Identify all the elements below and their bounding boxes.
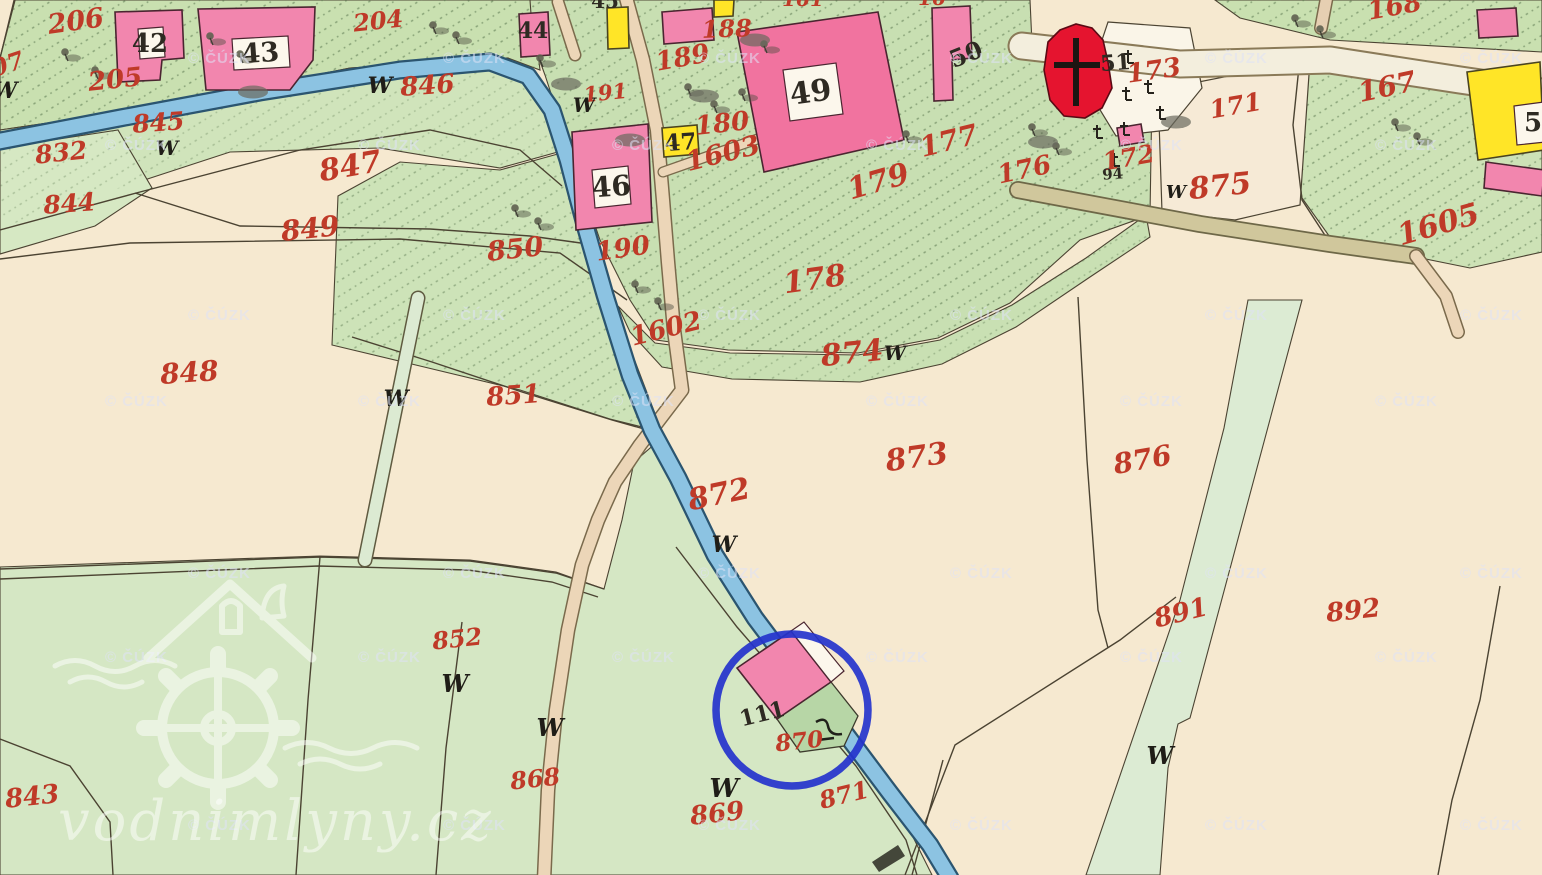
parcel-label-852: 852 [430,622,484,656]
copyright-watermark: © ČÚZK [1375,136,1438,154]
parcel-label-845: 845 [130,106,185,139]
copyright-watermark: © ČÚZK [1460,306,1523,324]
bush-smudge [238,86,268,99]
copyright-watermark: © ČÚZK [1205,306,1268,324]
parcel-label-45: 45 [591,0,619,13]
copyright-watermark: © ČÚZK [866,392,929,410]
copyright-watermark: © ČÚZK [105,392,168,410]
copyright-watermark: © ČÚZK [1460,816,1523,834]
meadow-w-mark: W [573,93,598,117]
copyright-watermark: © ČÚZK [950,306,1013,324]
building-pink-top-right [1477,8,1518,38]
bush-smudge [1028,136,1058,149]
copyright-watermark: © ČÚZK [1460,49,1523,67]
copyright-watermark: © ČÚZK [950,816,1013,834]
parcel-label-892: 892 [1324,593,1382,629]
cadastral-map-canvas[interactable]: 0720620520484684583284484784984885085119… [0,0,1542,875]
parcel-label-875: 875 [1186,166,1253,207]
copyright-watermark: © ČÚZK [1120,136,1183,154]
meadow-w-mark: W [368,73,395,99]
parcel-label-844: 844 [41,187,96,220]
parcel-label-874: 874 [818,333,885,374]
parcel-label-850: 850 [484,231,544,268]
meadow-w-mark: W [0,78,20,104]
copyright-watermark: © ČÚZK [950,49,1013,67]
copyright-watermark: © ČÚZK [950,564,1013,582]
site-watermark-text: vodnimlyny.cz [58,789,494,854]
parcel-label-204: 204 [351,4,405,38]
copyright-watermark: © ČÚZK [612,392,675,410]
parcel-label-846: 846 [398,69,455,103]
parcel-label-851: 851 [484,379,541,413]
copyright-watermark: © ČÚZK [1375,392,1438,410]
map-viewport: 0720620520484684583284484784984885085119… [0,0,1542,875]
copyright-watermark: © ČÚZK [612,648,675,666]
parcel-label-848: 848 [158,354,220,391]
parcel-label-843: 843 [3,779,61,815]
copyright-watermark: © ČÚZK [1120,392,1183,410]
parcel-label-49: 49 [788,72,834,112]
copyright-watermark: © ČÚZK [358,136,421,154]
parcel-label-832: 832 [33,135,89,169]
copyright-watermark: © ČÚZK [188,49,251,67]
parcel-label-42: 42 [132,29,168,59]
parcel-label-849: 849 [278,209,341,248]
copyright-watermark: © ČÚZK [188,564,251,582]
meadow-w-mark: W [712,532,739,558]
parcel-label-5: 5 [1524,108,1542,138]
copyright-watermark: © ČÚZK [698,564,761,582]
copyright-watermark: © ČÚZK [188,306,251,324]
parcel-label-870: 870 [773,726,825,758]
bush-smudge [1161,116,1191,129]
parcel-label-94: 94 [1102,164,1124,183]
parcel-label-16: 16 [918,0,946,10]
copyright-watermark: © ČÚZK [1460,564,1523,582]
bush-smudge [689,90,719,103]
meadow-w-mark: W [1166,182,1188,203]
copyright-watermark: © ČÚZK [358,648,421,666]
copyright-watermark: © ČÚZK [358,392,421,410]
parcel-label-51: 51 [1099,49,1131,77]
parcel-label-46: 46 [591,169,632,205]
parcel-label-44: 44 [518,18,549,44]
copyright-watermark: © ČÚZK [612,136,675,154]
parcel-label-188: 188 [701,13,752,44]
copyright-watermark: © ČÚZK [443,564,506,582]
parcel-label-205: 205 [86,62,144,98]
copyright-watermark: © ČÚZK [1375,648,1438,666]
copyright-watermark: © ČÚZK [698,306,761,324]
parcel-label-161: 161 [782,0,824,11]
copyright-watermark: © ČÚZK [866,648,929,666]
meadow-w-mark: W [709,774,741,804]
parcel-label-868: 868 [508,761,562,795]
copyright-watermark: © ČÚZK [443,49,506,67]
meadow-w-mark: W [442,669,471,698]
meadow-w-mark: W [1147,741,1176,770]
copyright-watermark: © ČÚZK [443,306,506,324]
copyright-watermark: © ČÚZK [1205,564,1268,582]
copyright-watermark: © ČÚZK [1120,648,1183,666]
building-yellow-1 [607,7,629,49]
copyright-watermark: © ČÚZK [1205,816,1268,834]
copyright-watermark: © ČÚZK [105,136,168,154]
copyright-watermark: © ČÚZK [698,49,761,67]
bush-smudge [551,78,581,91]
copyright-watermark: © ČÚZK [698,816,761,834]
copyright-watermark: © ČÚZK [866,136,929,154]
meadow-w-mark: W [537,713,566,742]
meadow-w-mark: W [884,341,909,365]
copyright-watermark: © ČÚZK [1205,49,1268,67]
